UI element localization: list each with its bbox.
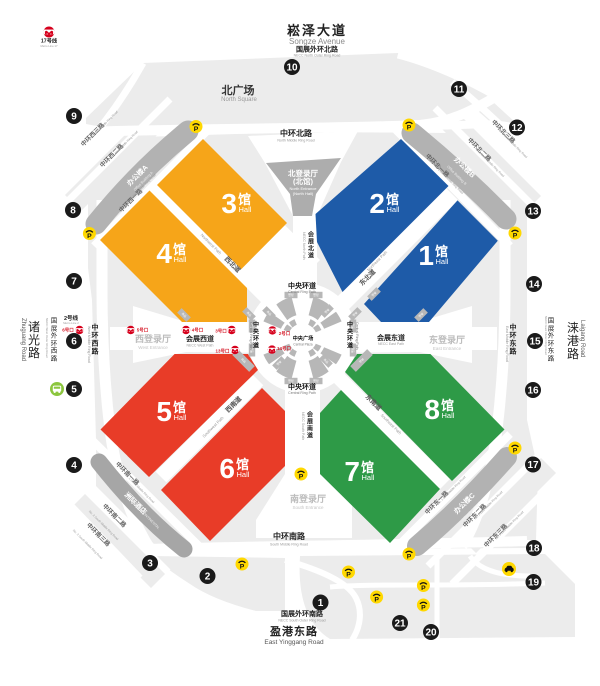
svg-text:道: 道 <box>347 342 353 350</box>
svg-text:5号口: 5号口 <box>137 327 149 334</box>
svg-text:4: 4 <box>71 460 77 471</box>
svg-text:15: 15 <box>529 336 541 347</box>
svg-text:P: P <box>513 447 518 454</box>
svg-text:Laigang Road: Laigang Road <box>579 320 585 357</box>
svg-text:中: 中 <box>92 323 99 332</box>
svg-text:P: P <box>87 233 92 240</box>
svg-text:5: 5 <box>71 384 77 395</box>
svg-text:国展外环北路: 国展外环北路 <box>296 45 339 54</box>
svg-text:路: 路 <box>51 353 58 362</box>
svg-text:P: P <box>407 553 412 560</box>
svg-text:Central Ring Path: Central Ring Path <box>249 322 253 350</box>
svg-text:南登录厅: 南登录厅 <box>290 493 326 504</box>
svg-text:东登录厅: 东登录厅 <box>429 334 465 345</box>
svg-text:Central Ring Path: Central Ring Path <box>288 391 316 395</box>
svg-text:13号口: 13号口 <box>215 348 230 355</box>
svg-text:NECC North Outer Ring Road: NECC North Outer Ring Road <box>294 54 341 58</box>
svg-text:环: 环 <box>347 335 353 343</box>
svg-text:道: 道 <box>308 252 314 260</box>
svg-text:环: 环 <box>510 332 517 340</box>
svg-text:South Middle Ring Road: South Middle Ring Road <box>270 543 308 547</box>
svg-text:13: 13 <box>527 206 539 217</box>
svg-text:NECC East Outer Ring Road: NECC East Outer Ring Road <box>544 316 548 355</box>
svg-text:展: 展 <box>51 324 58 332</box>
svg-text:展: 展 <box>307 418 313 426</box>
svg-text:2: 2 <box>369 188 385 219</box>
svg-text:P: P <box>240 563 245 570</box>
svg-text:West Middle Ring Road: West Middle Ring Road <box>87 326 91 363</box>
svg-text:国展外环南路: 国展外环南路 <box>281 609 324 618</box>
svg-text:中央环道: 中央环道 <box>288 382 316 391</box>
svg-text:商品: 商品 <box>313 379 319 383</box>
svg-text:中环南路: 中环南路 <box>273 531 306 541</box>
svg-text:North Square: North Square <box>221 97 257 103</box>
svg-text:Hall: Hall <box>436 257 449 266</box>
svg-text:诸: 诸 <box>28 320 40 334</box>
svg-text:(North Hall): (North Hall) <box>293 191 314 196</box>
svg-text:20: 20 <box>425 627 437 638</box>
svg-text:NECC South Outer Ring Road: NECC South Outer Ring Road <box>278 619 325 623</box>
svg-text:中: 中 <box>510 323 517 332</box>
svg-text:NECC West Path: NECC West Path <box>187 344 214 348</box>
svg-text:P: P <box>421 585 426 592</box>
svg-text:Central Ring Path: Central Ring Path <box>288 290 316 294</box>
svg-text:道: 道 <box>307 432 313 440</box>
svg-text:P: P <box>407 124 412 131</box>
svg-text:会展东道: 会展东道 <box>377 333 405 342</box>
svg-text:6: 6 <box>219 453 235 484</box>
svg-text:路: 路 <box>567 346 579 361</box>
svg-text:北: 北 <box>308 245 314 253</box>
svg-text:会: 会 <box>307 411 314 419</box>
svg-text:Hall: Hall <box>237 470 250 479</box>
svg-text:9: 9 <box>71 111 77 122</box>
svg-text:6: 6 <box>71 336 77 347</box>
svg-text:北广场: 北广场 <box>222 83 255 97</box>
svg-text:P: P <box>374 596 379 603</box>
svg-text:6号口: 6号口 <box>62 327 74 334</box>
svg-text:Songze Avenue: Songze Avenue <box>289 37 345 46</box>
svg-text:7: 7 <box>344 456 360 487</box>
svg-text:NECC West Outer Ring Road: NECC West Outer Ring Road <box>45 318 49 358</box>
svg-text:P: P <box>299 473 304 480</box>
svg-text:3号口: 3号口 <box>215 328 227 335</box>
svg-text:(北馆): (北馆) <box>293 176 313 186</box>
svg-text:17: 17 <box>527 460 539 471</box>
svg-text:港: 港 <box>567 334 579 348</box>
svg-text:会: 会 <box>308 231 315 239</box>
svg-text:1: 1 <box>318 598 324 609</box>
svg-text:央: 央 <box>253 328 260 336</box>
svg-text:西: 西 <box>92 340 99 348</box>
svg-text:East Entrance: East Entrance <box>433 346 462 351</box>
svg-text:Metro Line 17: Metro Line 17 <box>40 44 58 48</box>
svg-text:Hall: Hall <box>239 205 252 214</box>
svg-text:11: 11 <box>454 84 465 95</box>
svg-text:中央广场: 中央广场 <box>293 334 314 342</box>
svg-text:国: 国 <box>51 317 58 325</box>
svg-text:涞: 涞 <box>567 321 579 335</box>
svg-text:8: 8 <box>424 394 440 425</box>
svg-text:3: 3 <box>221 188 237 219</box>
svg-text:西登录厅: 西登录厅 <box>135 333 171 344</box>
svg-text:12: 12 <box>511 123 523 134</box>
svg-text:NECC East Path: NECC East Path <box>378 342 404 346</box>
svg-text:P: P <box>194 126 199 133</box>
svg-text:中环北路: 中环北路 <box>280 128 313 138</box>
svg-text:环: 环 <box>51 339 58 347</box>
svg-text:Central Ring Path: Central Ring Path <box>355 322 359 350</box>
svg-text:央: 央 <box>347 328 354 336</box>
svg-text:South Entrance: South Entrance <box>292 505 324 510</box>
svg-text:16: 16 <box>527 385 539 396</box>
svg-text:4号口: 4号口 <box>192 327 204 334</box>
svg-text:7: 7 <box>71 276 77 287</box>
svg-text:1: 1 <box>418 240 434 271</box>
svg-text:5: 5 <box>156 396 172 427</box>
svg-text:中央环道: 中央环道 <box>288 281 316 290</box>
svg-text:2: 2 <box>205 571 211 582</box>
svg-text:东: 东 <box>510 339 517 348</box>
svg-text:NECC South Path: NECC South Path <box>301 412 305 440</box>
svg-text:路: 路 <box>28 345 40 360</box>
svg-text:8: 8 <box>70 205 76 216</box>
svg-text:Hall: Hall <box>174 255 187 264</box>
svg-text:2号口: 2号口 <box>279 330 291 337</box>
svg-text:西: 西 <box>51 347 58 355</box>
svg-text:会展西道: 会展西道 <box>186 334 214 343</box>
svg-text:中: 中 <box>347 321 353 329</box>
svg-text:4: 4 <box>156 238 172 269</box>
svg-text:展: 展 <box>308 238 314 246</box>
svg-text:NECC North Path: NECC North Path <box>302 232 306 260</box>
svg-text:P: P <box>513 232 518 239</box>
svg-text:14: 14 <box>528 279 540 290</box>
svg-text:外: 外 <box>51 331 58 340</box>
svg-text:Zhuguang Road: Zhuguang Road <box>20 318 26 361</box>
svg-text:14号口: 14号口 <box>277 345 292 352</box>
svg-text:10: 10 <box>286 62 298 73</box>
svg-text:Hall: Hall <box>362 473 375 482</box>
svg-text:Hall: Hall <box>174 413 187 422</box>
svg-text:3: 3 <box>147 558 153 569</box>
svg-text:P: P <box>421 604 426 611</box>
svg-text:North Middle Ring Road: North Middle Ring Road <box>277 139 314 143</box>
svg-text:21: 21 <box>394 618 406 629</box>
svg-text:崧泽大道: 崧泽大道 <box>287 23 347 38</box>
svg-text:环: 环 <box>92 332 99 340</box>
svg-text:光: 光 <box>28 333 40 347</box>
svg-text:East Yinggang Road: East Yinggang Road <box>264 639 324 646</box>
svg-text:West Entrance: West Entrance <box>138 345 168 350</box>
svg-text:盈港东路: 盈港东路 <box>269 624 318 638</box>
svg-text:路: 路 <box>92 347 100 356</box>
svg-text:P: P <box>346 571 351 578</box>
svg-text:路: 路 <box>510 347 518 356</box>
svg-text:19: 19 <box>528 577 540 588</box>
svg-text:Hall: Hall <box>387 205 400 214</box>
svg-text:商品: 商品 <box>288 379 294 383</box>
svg-text:Hall: Hall <box>442 411 455 420</box>
svg-text:18: 18 <box>528 543 540 554</box>
svg-text:Metro Line 2: Metro Line 2 <box>63 321 79 325</box>
svg-text:East Middle Ring Road: East Middle Ring Road <box>505 326 509 362</box>
svg-text:南: 南 <box>307 425 313 433</box>
svg-text:Central Plaza: Central Plaza <box>293 343 312 347</box>
